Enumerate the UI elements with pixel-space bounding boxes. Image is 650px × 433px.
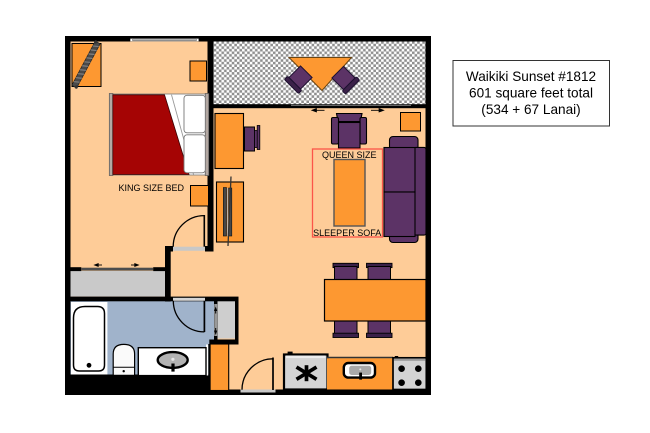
svg-text:(534 + 67 Lanai): (534 + 67 Lanai) xyxy=(481,102,580,117)
svg-text:Waikiki Sunset #1812: Waikiki Sunset #1812 xyxy=(466,69,596,84)
svg-text:KING SIZE BED: KING SIZE BED xyxy=(119,183,185,193)
svg-text:QUEEN SIZE: QUEEN SIZE xyxy=(322,150,377,160)
svg-text:SLEEPER SOFA: SLEEPER SOFA xyxy=(313,228,381,238)
svg-text:601 square feet total: 601 square feet total xyxy=(469,86,593,101)
